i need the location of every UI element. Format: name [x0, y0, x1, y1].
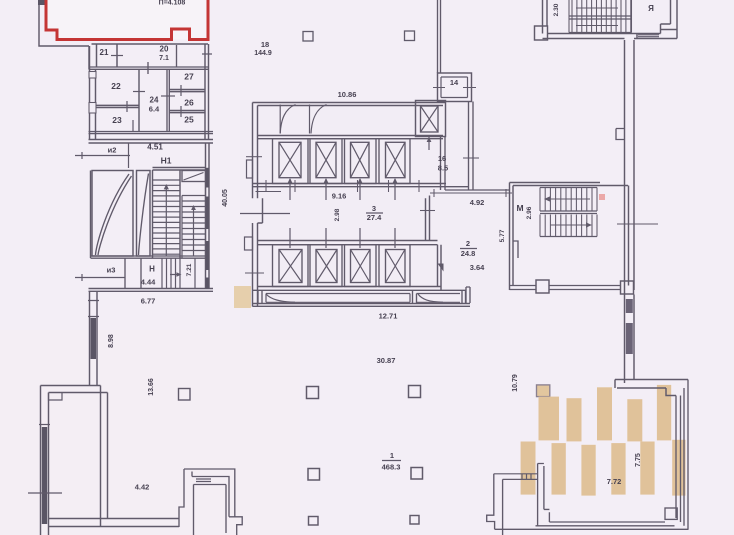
svg-text:18: 18 [261, 40, 269, 49]
svg-text:40.05: 40.05 [222, 189, 229, 207]
svg-text:16: 16 [438, 154, 446, 163]
svg-text:7.21: 7.21 [186, 263, 193, 276]
svg-text:8.98: 8.98 [108, 334, 115, 348]
svg-text:20: 20 [160, 45, 169, 54]
svg-text:10.79: 10.79 [512, 374, 519, 392]
svg-text:12.71: 12.71 [379, 312, 398, 321]
svg-text:13.66: 13.66 [148, 378, 155, 396]
svg-text:3.64: 3.64 [470, 263, 485, 272]
svg-text:Н1: Н1 [161, 156, 172, 166]
svg-text:4.92: 4.92 [470, 198, 485, 207]
svg-text:22: 22 [111, 81, 121, 91]
svg-text:9.16: 9.16 [332, 192, 347, 201]
svg-text:8.5: 8.5 [438, 164, 448, 173]
svg-text:144.9: 144.9 [254, 50, 272, 57]
svg-text:4.51: 4.51 [147, 143, 163, 152]
svg-text:и3: и3 [107, 266, 116, 275]
svg-text:24: 24 [150, 96, 159, 105]
svg-text:30.87: 30.87 [377, 356, 396, 365]
svg-text:468.3: 468.3 [382, 463, 401, 472]
svg-text:П=4.108: П=4.108 [159, 0, 186, 7]
svg-text:4.44: 4.44 [141, 278, 156, 287]
svg-text:7.75: 7.75 [635, 453, 642, 467]
svg-text:6.4: 6.4 [149, 105, 160, 114]
svg-text:7.72: 7.72 [607, 477, 622, 486]
svg-text:7.1: 7.1 [159, 55, 169, 62]
svg-text:4.42: 4.42 [135, 483, 150, 492]
svg-text:М: М [516, 203, 523, 213]
svg-text:Н: Н [149, 265, 155, 274]
svg-text:6.77: 6.77 [141, 297, 156, 306]
svg-text:3: 3 [372, 204, 376, 213]
svg-text:и2: и2 [108, 146, 117, 155]
svg-text:2: 2 [466, 239, 470, 248]
svg-text:2.98: 2.98 [334, 208, 341, 221]
svg-text:1: 1 [390, 451, 394, 460]
svg-text:27: 27 [184, 72, 194, 82]
svg-text:10.86: 10.86 [338, 90, 357, 99]
svg-text:14: 14 [450, 78, 459, 87]
svg-text:24.8: 24.8 [461, 249, 476, 258]
svg-text:2.96: 2.96 [526, 206, 533, 219]
svg-text:5.77: 5.77 [499, 229, 506, 242]
svg-text:27.4: 27.4 [367, 213, 382, 222]
svg-text:25: 25 [184, 115, 194, 125]
svg-text:23: 23 [112, 115, 122, 125]
svg-text:26: 26 [184, 98, 194, 108]
svg-text:21: 21 [100, 48, 109, 57]
svg-text:Я: Я [648, 4, 654, 13]
svg-text:2.30: 2.30 [553, 3, 560, 16]
